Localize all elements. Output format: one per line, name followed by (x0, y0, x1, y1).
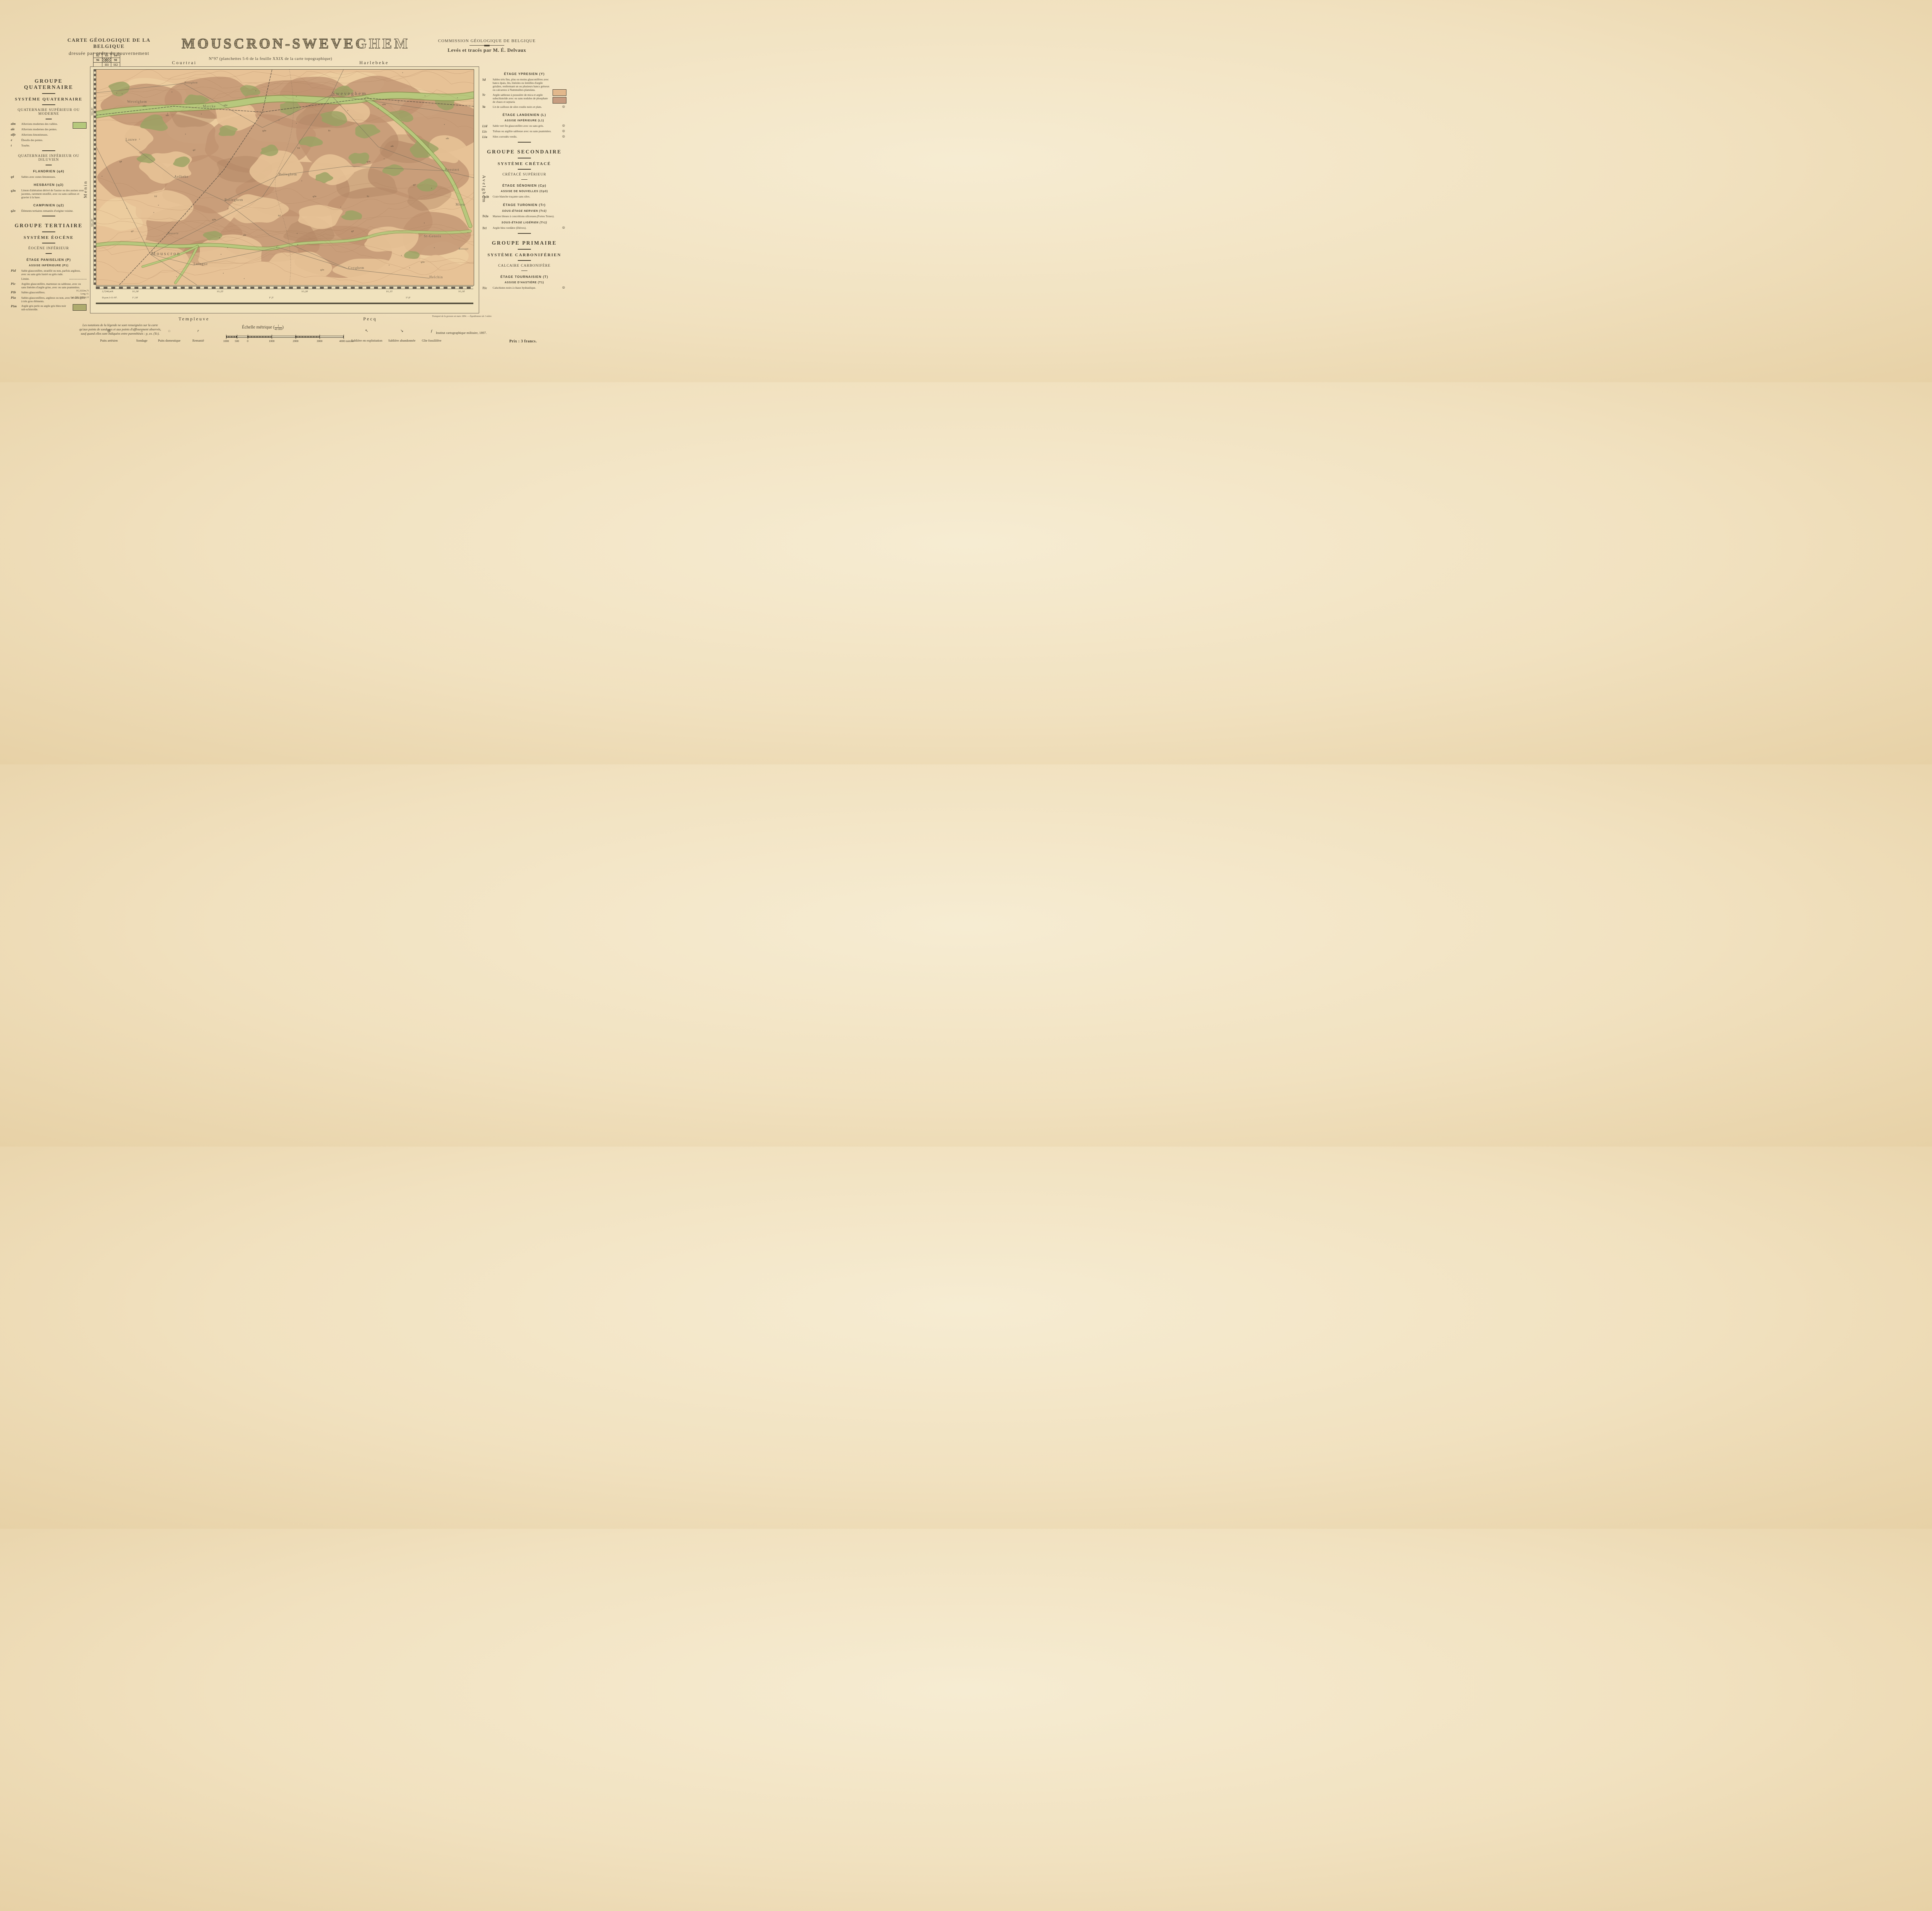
map-geology-code: q3 (131, 230, 134, 233)
hamlet-dot (223, 273, 224, 274)
symbol-glyph-icon: ○ (136, 329, 147, 333)
symbol-label: Sablière abandonnée (388, 339, 416, 342)
surveyor-credit: Levés et tracés par M. É. Delvaux (425, 47, 549, 53)
legend-heading: SOUS-ÉTAGE LIGÉRIEN (Tr1) (482, 221, 566, 224)
dotted-limit-line (70, 279, 87, 279)
hamlet-dot (431, 188, 432, 189)
scale-bar-number: 3000 (317, 339, 323, 343)
hamlet-dot (297, 233, 298, 234)
map-geology-code: ale (446, 137, 449, 140)
map-geology-code: alm (382, 103, 386, 106)
scale-bar-number: 500 (235, 339, 239, 343)
legend-heading: QUATERNAIRE INFÉRIEUR OU DILUVIEN (11, 154, 87, 162)
legend-item-text: Lit de cailloux de silex roulés noirs et… (493, 105, 566, 109)
legend-item-text: Craie blanche traçante sans silex. (493, 195, 566, 199)
map-symbol-puits-domestique: □Puits domestique (158, 329, 180, 342)
legend-item-code: P1d (11, 269, 21, 276)
divider-rule (42, 243, 55, 243)
corner-coordinate-line: Long. O. (70, 293, 89, 296)
legend-item: YcArgile sableuse à poussière de mica et… (482, 93, 566, 104)
legend-heading: ÉTAGE LANDENIEN (L) (482, 113, 566, 117)
symbol-label: Sondage (136, 339, 147, 342)
longitude-label-grades: 1G,25' (217, 290, 223, 293)
scale-bar-segment (296, 336, 320, 338)
legend-item: Tr1Argile bleu verdâtre (Dièves).◎ (482, 226, 566, 230)
map-geology-code: q4 (119, 160, 122, 163)
legend-item-text: Éboulis des pentes. (21, 138, 87, 143)
hamlet-dot (176, 276, 177, 277)
legend-heading: ÉTAGE TOURNAISIEN (T) (482, 275, 566, 279)
legend-item: YdSables très fins, plus ou moins glauco… (482, 78, 566, 92)
divider-rule (518, 233, 531, 234)
divider-rule (46, 253, 52, 254)
scale-bar-tick (248, 335, 248, 339)
map-geology-code: alm (224, 104, 228, 107)
legend-item: Cp3bCraie blanche traçante sans silex. (482, 195, 566, 199)
legend-item-text: Alluvions modernes des pentes. (21, 128, 87, 132)
legend-item: P1cArgilite glauconifère, marneuse ou sa… (11, 282, 87, 289)
legend-heading: ÉTAGE TURONIEN (Tr) (482, 203, 566, 207)
symbol-glyph-icon: r (192, 329, 204, 333)
legend-heading: GROUPE QUATERNAIRE (11, 78, 87, 90)
hamlet-dot (424, 223, 425, 223)
map-town-label: Rolleghem (224, 198, 243, 202)
legend-heading: GROUPE TERTIAIRE (11, 223, 87, 229)
hamlet-dot (340, 105, 341, 106)
legend-item: P1dSable glauconifère, stratifié ou non,… (11, 269, 87, 276)
map-geology-code: q3 (351, 230, 354, 233)
scale-fraction-numerator: 1 (275, 325, 282, 327)
divider-rule (518, 249, 531, 250)
origin-label-dpm: D.p.m.3-11-97. (102, 296, 117, 299)
legend-item-code: L1d (482, 124, 493, 128)
legend-item-code: Tr2a (482, 214, 493, 219)
legend-item-text: Argile bleu verdâtre (Dièves). (493, 226, 566, 230)
latitude-label: 56G,45' (91, 107, 94, 116)
legend-item: T1cCalschistes noirs à chaux hydraulique… (482, 286, 566, 290)
legend-item-code: q3n (11, 189, 21, 199)
divider-rule (518, 169, 531, 170)
map-town-label: Heestert (445, 168, 459, 172)
legend-right-column: ÉTAGE YPRESIEN (Y)YdSables très fins, pl… (482, 68, 566, 291)
symbol-label: Puits domestique (158, 339, 180, 342)
hamlet-dot (219, 237, 220, 238)
map-geology-code: q3 (193, 149, 196, 151)
map-geology-code: Yd (278, 214, 281, 217)
geology-olive-patch (404, 251, 420, 259)
hamlet-dot (389, 265, 389, 265)
map-geology-code: q3n (262, 129, 266, 132)
map-edge-label-templeuve: Templeuve (179, 316, 209, 322)
map-geology-code: Yc (328, 129, 331, 132)
longitude-label-grades: 1G,20' (301, 290, 308, 293)
hamlet-dot (139, 139, 140, 140)
map-town-label: Moen (456, 203, 465, 206)
decorative-rule (469, 45, 504, 46)
map-town-label: Bouverie (167, 232, 179, 235)
legend-heading: FLANDRIEN (q4) (11, 169, 87, 173)
legend-heading: GROUPE PRIMAIRE (482, 240, 566, 246)
index-grid-cell: 84 (111, 53, 120, 58)
legend-item-code: e (11, 138, 21, 143)
map-geology-code: ale (243, 234, 246, 237)
legend-item-code (11, 277, 21, 281)
divider-rule (46, 165, 52, 165)
hamlet-dot (384, 158, 384, 159)
legend-item-text: Silex corrodés verdis. (493, 135, 566, 139)
divider-rule (518, 142, 531, 143)
hamlet-dot (158, 205, 159, 206)
sheet-index-grid-body: 828384969798111112 (94, 53, 120, 67)
hamlet-dot (296, 96, 297, 97)
hamlet-dot (402, 72, 403, 73)
hamlet-dot (468, 232, 468, 233)
map-geology-code: alm (143, 105, 146, 107)
map-edge-label-harlebeke: Harlebeke (359, 60, 389, 66)
map-edge-label-avelghem: Avelghem (481, 175, 487, 203)
legend-item: L1cTufeau ou argilite sableuse avec ou s… (482, 129, 566, 134)
legend-heading: ASSISE DE NOUVELLES (Cp3) (482, 190, 566, 193)
map-geology-code: ale (391, 145, 394, 148)
legend-item: alfeAlluvions limoniteuses. (11, 133, 87, 137)
scale-bar-segment (272, 336, 296, 338)
hamlet-dot (201, 114, 202, 114)
legend-item-code: ale (11, 128, 21, 132)
publisher-title: CARTE GÉOLOGIQUE DE LA BELGIQUE (57, 37, 161, 49)
legend-heading: SYSTÈME CRÉTACÉ (482, 162, 566, 166)
map-symbol-sondage: ○Sondage (136, 329, 147, 342)
legend-heading: GROUPE SECONDAIRE (482, 149, 566, 155)
legend-item-code: P1a (11, 296, 21, 303)
scale-bar-segment (248, 336, 272, 338)
note-line: sauf quand elles sont indiquées entre pa… (69, 332, 172, 336)
corner-coordinate-line: Lat. 56G,3653m,12 (70, 296, 89, 299)
map-geology-code: q3n (367, 160, 371, 163)
scale-bar-number: 0 (247, 339, 248, 343)
hamlet-dot (444, 124, 445, 125)
longitude-label-grades: 1G,15' (386, 290, 393, 293)
legend-item: L1aSilex corrodés verdis.◎ (482, 135, 566, 139)
hamlet-dot (116, 93, 117, 94)
legend-heading: ÉTAGE PANISELIEN (P) (11, 258, 87, 262)
legend-item-code: P1m (11, 304, 21, 311)
legend-heading: ÉTAGE YPRESIEN (Y) (482, 72, 566, 76)
legend-item: P1mArgile gris perle ou argile gris bleu… (11, 304, 87, 311)
scale-bar-tick (296, 335, 296, 339)
title-block: MOUSCRON-SWEVEGHEM N°97 (planchettes 5-6… (182, 36, 359, 61)
divider-rule (42, 93, 55, 94)
map-edge-label-pecq: Pecq (363, 316, 377, 322)
map-edge-label-courtrai: Courtrai (172, 60, 197, 66)
corner-coordinates: 1G,3222m,71 Long. O. Lat. 56G,3653m,12 (70, 289, 89, 299)
hamlet-dot (126, 208, 127, 209)
legend-item-code: alfe (11, 133, 21, 137)
map-geology-code: ale (166, 114, 169, 117)
map-geology-code: q3n (212, 218, 216, 221)
double-circle-icon: ◎ (562, 135, 565, 138)
scale-bar-tick (272, 335, 272, 339)
legend-item-code: P1c (11, 282, 21, 289)
map-title: MOUSCRON-SWEVEGHEM (182, 36, 359, 52)
hamlet-dot (185, 134, 186, 134)
map-sheet: 56G,45' 56G,40' WevelghemBisseghemMarcke… (90, 66, 479, 313)
latitude-label: 56G,40' (91, 219, 94, 227)
legend-item-text: Éléments tertiaires remaniés d'origine v… (21, 209, 87, 213)
legend-heading: HESBAYEN (q3) (11, 183, 87, 187)
color-swatch (73, 304, 87, 311)
legend-item: q4Sables avec zones limoneuses. (11, 175, 87, 179)
hamlet-dot (296, 123, 297, 124)
map-geology-code: e (297, 243, 298, 246)
symbol-label: Gîte fossilifère (422, 339, 442, 342)
scale-fraction-denominator: 40 000 (275, 327, 282, 331)
hamlet-dot (102, 176, 102, 177)
legend-item-code: Yd (482, 78, 493, 92)
double-circle-icon: ◎ (562, 129, 565, 133)
corner-coordinate-line: 1G,3222m,71 (70, 289, 89, 293)
map-symbol-sabli-re-abandonn-e: ↘Sablière abandonnée (388, 329, 416, 342)
graticule-bar-bottom (96, 286, 473, 289)
longitude-label-grades: 1G,10' (458, 290, 465, 293)
legend-item: eÉboulis des pentes. (11, 138, 87, 143)
note-line: qu'aux points de sondages et aux points … (69, 327, 172, 332)
legend-item-text: Limon d'altération dérivé de l'assise ou… (21, 189, 87, 199)
legend-heading: ASSISE D'HASTIÉRE (T1) (482, 281, 566, 284)
scale-bar-tick (226, 335, 226, 339)
hamlet-dot (409, 267, 410, 268)
commission-block: COMMISSION GÉOLOGIQUE DE BELGIQUE Levés … (425, 39, 549, 53)
map-geology-code: q3n (421, 261, 425, 264)
map-town-label: Helchin (429, 275, 443, 279)
legend-heading: SYSTÈME QUATERNAIRE (11, 97, 87, 102)
hamlet-dot (244, 278, 245, 279)
symbol-glyph-icon: □ (158, 329, 180, 333)
divider-rule (521, 179, 527, 180)
legend-heading: QUATERNAIRE SUPÉRIEUR OU MODERNE (11, 108, 87, 116)
legend-item-text: Tourbe. (21, 144, 87, 148)
hamlet-dot (221, 254, 221, 255)
map-town-label: Aelbeke (174, 175, 189, 179)
symbol-glyph-icon: ↘ (388, 329, 416, 333)
legend-item: almAlluvions modernes des vallées. (11, 122, 87, 126)
legend-heading: SOUS-ÉTAGE NERVIEN (Tr2) (482, 210, 566, 213)
scale-bar-tick (320, 335, 320, 339)
legend-item-code: q2o (11, 209, 21, 213)
legend-item-text: Alluvions limoniteuses. (21, 133, 87, 137)
longitude-label-degrees: 1°,10' (132, 296, 138, 299)
legend-heading: CALCAIRE CARBONIFÈRE (482, 264, 566, 268)
scale-bar-segment (226, 336, 237, 338)
hamlet-dot (457, 97, 458, 98)
legend-item-text: Marnes bleues à concrétions siliceuses.(… (493, 214, 566, 219)
map-town-label: Bossuyt (459, 247, 469, 250)
longitude-label-grades: 1G,30' (132, 290, 139, 293)
divider-rule (518, 260, 531, 261)
map-geology-code: Yc (367, 195, 369, 198)
legend-item-code: alm (11, 122, 21, 126)
legend-item-code: L1a (482, 135, 493, 139)
legend-item: q3nLimon d'altération dérivé de l'assise… (11, 189, 87, 199)
divider-rule (46, 119, 52, 119)
hamlet-dot (340, 207, 341, 208)
symbol-glyph-icon: ◎ (100, 329, 118, 333)
scale-bar-number: 1000 (269, 339, 275, 343)
legend-heading: CAMPINIEN (q2) (11, 203, 87, 207)
double-circle-icon: ◎ (562, 124, 565, 127)
legend-item-code: Yc (482, 93, 493, 104)
hamlet-dot (153, 212, 154, 213)
legend-usage-note: Les notations de la légende ne sont rens… (69, 323, 172, 336)
legend-item-code: q4 (11, 175, 21, 179)
symbol-label: Sablière en exploitation (351, 339, 383, 342)
scale-bar-tick (237, 335, 237, 339)
page: { "header":{ "org_title":"CARTE GÉOLOGIQ… (0, 0, 570, 382)
map-symbol-puits-art-sien: ◎Puits artésien (100, 329, 118, 342)
legend-item-text: Argilite glauconifère, marneuse ou sable… (21, 282, 87, 289)
legend-heading: ASSISE INFÉRIEURE (L1) (482, 119, 566, 122)
scale-title: Échelle métrique (140 000) (216, 325, 309, 331)
hamlet-dot (378, 108, 379, 109)
index-grid-cell: 96 (94, 58, 102, 63)
legend-heading: ÉOCÈNE INFÉRIEUR (11, 247, 87, 250)
commission-title: COMMISSION GÉOLOGIQUE DE BELGIQUE (425, 39, 549, 43)
legend-item-text: Calschistes noirs à chaux hydraulique. (493, 286, 566, 290)
index-grid-cell: 83 (102, 53, 111, 58)
hamlet-dot (301, 180, 302, 181)
scale-bar-segment (237, 336, 248, 338)
scale-bar-number: 2000 (293, 339, 299, 343)
legend-item: tTourbe. (11, 144, 87, 148)
legend-item-code: Ya (482, 105, 493, 109)
legend-item: q2oÉléments tertiaires remaniés d'origin… (11, 209, 87, 213)
scale-paren-close: ) (282, 325, 284, 330)
map-town-label: Coyghem (348, 266, 364, 270)
legend-heading: ASSISE INFÉRIEURE (P1) (11, 264, 87, 267)
index-grid-cell: 82 (94, 53, 102, 58)
legend-item-code: t (11, 144, 21, 148)
scale-fraction: 140 000 (275, 325, 282, 331)
index-grid-cell: 97 (102, 58, 111, 63)
map-geology-code: Yd (154, 195, 157, 198)
divider-rule (42, 216, 55, 216)
map-canvas: WevelghemBisseghemMarckeSweveghemLauweAe… (96, 69, 474, 286)
institute-credit: Institut cartographique militaire, 1897. (436, 331, 486, 335)
hamlet-dot (167, 113, 168, 114)
origin-label-north: 3,7240,mN. (102, 290, 114, 293)
index-grid-cell: 98 (111, 58, 120, 63)
hamlet-dot (255, 90, 256, 91)
scale-bar-tick (344, 335, 344, 339)
legend-heading: CRÉTACÉ SUPÉRIEUR (482, 173, 566, 177)
legend-item-text: Sable vert fin glauconifère avec ou sans… (493, 124, 566, 128)
scale-title-text: Échelle métrique (242, 325, 272, 330)
hamlet-dot (347, 110, 348, 111)
hamlet-dot (398, 102, 399, 102)
price-label: Prix : 3 francs. (509, 339, 537, 344)
symbol-glyph-icon: ↖ (351, 329, 383, 333)
legend-item: Tr2aMarnes bleues à concrétions siliceus… (482, 214, 566, 219)
map-symbol-remani-: rRemanié (192, 329, 204, 342)
color-swatch (553, 97, 566, 104)
map-geology-code: Yd (297, 147, 300, 150)
hamlet-dot (172, 92, 172, 92)
legend-item-text: Sable glauconifère, stratifié ou non, pa… (21, 269, 87, 276)
symbol-label: Remanié (192, 339, 204, 342)
legend-left-column: GROUPE QUATERNAIRESYSTÈME QUATERNAIREQUA… (11, 72, 87, 313)
divider-rule (42, 231, 55, 232)
divider-rule (42, 150, 55, 151)
map-geology-code: q3 (413, 184, 416, 186)
double-circle-icon: ◎ (562, 286, 565, 289)
hamlet-dot (114, 113, 114, 114)
map-geology-code: q3n (313, 195, 316, 198)
note-line: Les notations de la légende ne sont rens… (69, 323, 172, 327)
hamlet-dot (122, 94, 122, 94)
map-geology-code: q3n (320, 269, 324, 271)
sheet-bottom-rule (96, 303, 473, 304)
map-town-label: Marcke (203, 104, 216, 108)
map-town-label: Belleghem (279, 172, 297, 176)
legend-item-code: T1c (482, 286, 493, 290)
map-town-label: Lauwe (126, 138, 137, 141)
legend-heading: SYSTÈME ÉOCÈNE (11, 235, 87, 240)
double-circle-icon: ◎ (562, 226, 565, 229)
hamlet-dot (401, 255, 402, 256)
hamlet-dot (425, 95, 425, 96)
legend-heading: SYSTÈME CARBONIFÉRIEN (482, 253, 566, 257)
symbol-label: Puits artésien (100, 339, 118, 342)
hamlet-dot (228, 208, 228, 209)
index-grid-row: 828384 (94, 53, 120, 58)
scale-bar-segment (320, 336, 344, 338)
legend-item: L1dSable vert fin glauconifère avec ou s… (482, 124, 566, 128)
map-subtitle: N°97 (planchettes 5-6 de la feuille XXIX… (182, 57, 359, 61)
legend-item: YaLit de cailloux de silex roulés noirs … (482, 105, 566, 109)
legend-item-code: Tr1 (482, 226, 493, 230)
longitude-label-degrees: 1°,5' (269, 296, 274, 299)
map-town-label: Sweveghem (332, 90, 367, 96)
longitude-label-degrees: 1°,0' (406, 296, 410, 299)
hamlet-dot (240, 115, 241, 116)
sheet-index-grid: 828384969798111112 (93, 53, 120, 67)
map-edge-label-menin: Menin (83, 180, 88, 198)
divider-rule (521, 271, 527, 271)
geological-map-image: WevelghemBisseghemMarckeSweveghemLauweAe… (96, 70, 474, 285)
hamlet-dot (279, 120, 279, 121)
hamlet-dot (403, 123, 403, 123)
legend-heading: ÉTAGE SÉNONIEN (Cp) (482, 184, 566, 187)
legend-item: aleAlluvions modernes des pentes. (11, 128, 87, 132)
map-town-label: Luingne (194, 262, 208, 266)
hamlet-dot (434, 247, 435, 248)
map-town-label: Mouscron (151, 250, 181, 256)
legend-item-text: Sables avec zones limoneuses. (21, 175, 87, 179)
legend-item: Limite. (11, 277, 87, 281)
map-town-label: St-Genois (424, 234, 441, 238)
hamlet-dot (185, 214, 185, 215)
engraving-note: Transport de la gravure en mars 1894. — … (432, 315, 492, 318)
index-grid-row: 969798 (94, 58, 120, 63)
map-town-label: Bisseghem (184, 81, 197, 84)
hamlet-dot (227, 247, 228, 248)
map-town-label: Wevelghem (127, 100, 147, 104)
scale-bar-number: 1000 (223, 339, 229, 343)
legend-item-code: L1c (482, 129, 493, 134)
divider-rule (518, 158, 531, 158)
map-symbol-sabli-re-en-exploitation: ↖Sablière en exploitation (351, 329, 383, 342)
double-circle-icon: ◎ (562, 105, 565, 108)
divider-rule (42, 104, 55, 105)
